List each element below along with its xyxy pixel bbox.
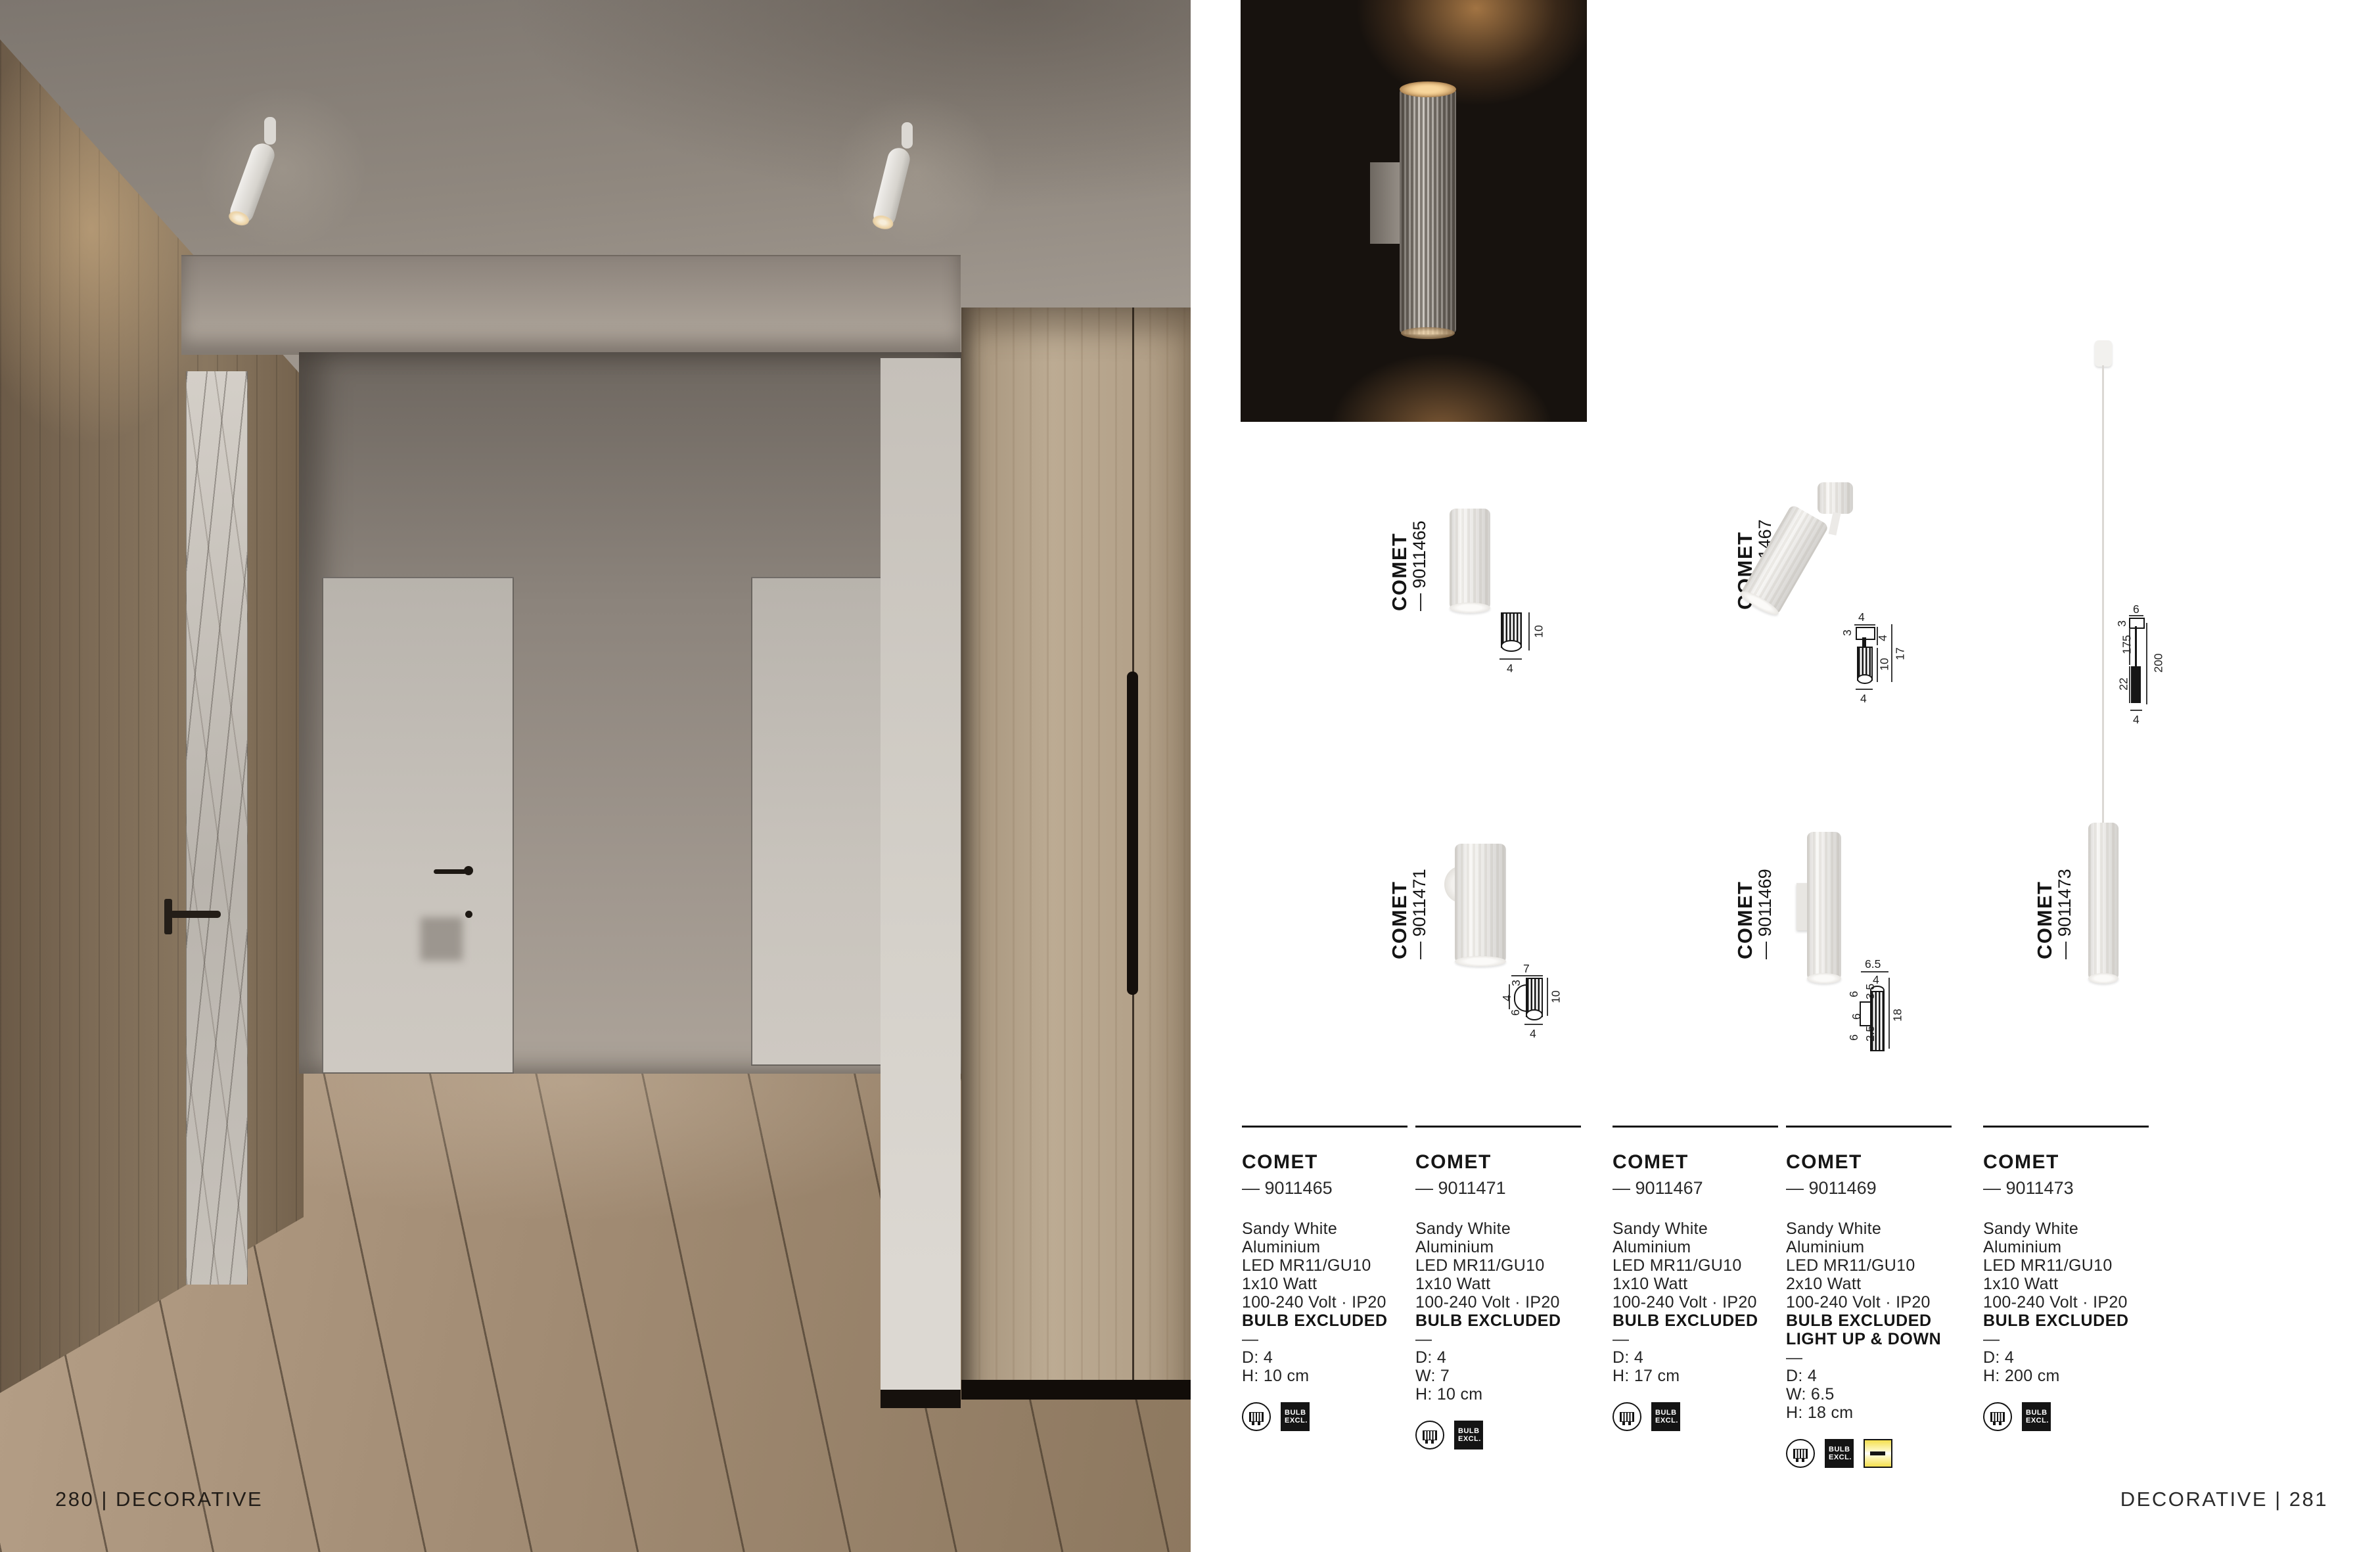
ribbed-cylinder-lamp [1400,87,1456,334]
column-rule [1415,1126,1581,1128]
tech-9011465-face [1501,640,1522,652]
gu10-bulb-icon [1613,1402,1641,1431]
dim-9011471-mount-h: 4 [1501,995,1513,1001]
spec-bold-line: LIGHT UP & DOWN [1786,1330,1952,1348]
drawing-label-9011473: COMET — 9011473 [2034,869,2074,959]
tech-9011473-canopy [2129,618,2145,629]
dim-line: H: 10 cm [1242,1367,1407,1385]
dim-9011471-diameter: 4 [1530,1028,1536,1039]
dim-9011473-diameter: 4 [2133,714,2140,725]
spec-line: Sandy White [1983,1220,2149,1238]
drawing-label-9011471: COMET — 9011471 [1389,869,1429,959]
render-9011467-stem [1829,512,1841,536]
spec-line: 100-240 Volt · IP20 [1613,1293,1778,1312]
page-number-right: DECORATIVE | 281 [2120,1488,2328,1511]
bulb-excluded-badge: BULBEXCL. [1281,1402,1310,1431]
white-door-left [322,577,514,1074]
dim-9011469-l5: 2.5 [1864,1026,1876,1041]
dim-9011469-l4: 6 [1848,1034,1860,1041]
dim-9011469-depth: 6.5 [1865,958,1881,970]
dim-line: D: 4 [1242,1348,1407,1367]
render-9011467-canopy [1818,482,1853,514]
dim-line: D: 4 [1613,1348,1778,1367]
dim-9011471-offset: 6 [1509,1009,1521,1016]
interior-photo: 280 | DECORATIVE [0,0,1191,1552]
dim-9011467-total-h: 17 [1894,647,1906,660]
dim-9011473-canopy-h: 3 [2116,620,2128,627]
dim-9011473-canopy-w: 6 [2133,603,2140,615]
white-door-right [751,577,882,1066]
pillar-plinth [881,1390,961,1408]
gu10-bulb-icon [1415,1421,1444,1449]
render-9011473-cord [2102,365,2104,824]
product-spec-9011473: COMET — 9011473 Sandy White Aluminium LE… [1983,1126,2149,1431]
spec-line: LED MR11/GU10 [1613,1256,1778,1275]
bulb-excluded-badge: BULBEXCL. [1825,1439,1854,1468]
spec-line: 100-240 Volt · IP20 [1786,1293,1952,1312]
drawing-label-9011465: COMET — 9011465 [1389,520,1429,611]
product-name: COMET [1415,1151,1581,1174]
spec-bold-line: BULB EXCLUDED [1613,1312,1778,1330]
product-spec-9011469: COMET — 9011469 Sandy White Aluminium LE… [1786,1126,1952,1468]
dim-9011471-height: 10 [1550,990,1562,1003]
gu10-bulb-icon [1786,1439,1815,1468]
bulb-excluded-badge: BULBEXCL. [1651,1402,1680,1431]
dim-line: D: 4 [1415,1348,1581,1367]
spec-line: Aluminium [1786,1238,1952,1256]
product-code: — 9011467 [1613,1178,1778,1198]
left-door-handle [170,911,221,918]
spotlight-glow-left [197,85,368,250]
light-up-down-icon [1864,1439,1892,1468]
spec-line: 1x10 Watt [1983,1275,2149,1293]
product-spec-9011467: COMET — 9011467 Sandy White Aluminium LE… [1613,1126,1778,1431]
catalog-page: 280 | DECORATIVE COMET — 9011465 10 4 CO… [0,0,2380,1552]
wall-bracket [1370,162,1400,244]
spec-line: 1x10 Watt [1242,1275,1407,1293]
product-name: COMET [1983,1151,2149,1174]
dim-line: D: 4 [1786,1367,1952,1385]
column-rule [1786,1126,1952,1128]
spotlight-glow-right [835,92,999,250]
white-pillar [881,358,961,1408]
dim-9011473-wire-l: 175 [2121,635,2133,654]
spec-bold-line: BULB EXCLUDED [1415,1312,1581,1330]
render-9011465 [1450,509,1490,610]
spec-line: Aluminium [1983,1238,2149,1256]
dim-9011467-canopy-h: 3 [1841,629,1853,636]
dim-9011469-l3: 6 [1850,1013,1862,1020]
wardrobe-handle [1127,672,1138,995]
bulb-excluded-badge: BULBEXCL. [1454,1421,1483,1449]
marble-strip [186,371,248,1285]
drawing-label-9011469: COMET — 9011469 [1735,869,1775,959]
dim-9011465-height: 10 [1533,625,1545,637]
page-number-left: 280 | DECORATIVE [55,1488,263,1511]
spec-bold-line: BULB EXCLUDED [1786,1312,1952,1330]
render-9011469-body [1807,832,1841,980]
tech-9011469-body [1870,991,1885,1051]
spec-line: 2x10 Watt [1786,1275,1952,1293]
render-9011471-body [1455,844,1506,963]
render-9011473-body [2088,823,2118,980]
dim-9011469-l1: 6 [1848,991,1860,997]
gu10-bulb-icon [1242,1402,1271,1431]
spec-line: Sandy White [1786,1220,1952,1238]
product-spec-9011471: COMET — 9011471 Sandy White Aluminium LE… [1415,1126,1581,1449]
wood-wardrobe [961,308,1191,1400]
column-rule [1613,1126,1778,1128]
spec-line: 100-240 Volt · IP20 [1415,1293,1581,1312]
lamp-top-glow [1400,81,1456,97]
spec-line: 1x10 Watt [1613,1275,1778,1293]
render-9011473-canopy [2095,340,2112,367]
dim-9011469-l2: 3.5 [1864,984,1876,999]
product-code: — 9011473 [1983,1178,2149,1198]
spec-line: Sandy White [1242,1220,1407,1238]
dim-line: W: 6.5 [1786,1385,1952,1404]
dim-9011473-body-h: 22 [2118,677,2130,690]
spec-divider-dash: — [1242,1330,1407,1348]
dim-9011465-diameter: 4 [1507,662,1513,674]
spec-line: Sandy White [1415,1220,1581,1238]
spec-line: Aluminium [1415,1238,1581,1256]
spotlight-left-mount [264,117,276,145]
product-code: — 9011465 [1242,1178,1407,1198]
dim-9011473-total-h: 200 [2153,653,2164,672]
spec-line: LED MR11/GU10 [1786,1256,1952,1275]
dim-9011467-diameter: 4 [1860,693,1867,704]
product-name: COMET [1242,1151,1407,1174]
product-code: — 9011471 [1415,1178,1581,1198]
spec-line: Aluminium [1242,1238,1407,1256]
spec-divider-dash: — [1983,1330,2149,1348]
spotlight-right-mount [902,122,913,148]
dim-line: W: 7 [1415,1367,1581,1385]
wardrobe-plinth [961,1380,1191,1400]
dim-9011467-body-h: 10 [1879,658,1890,670]
product-code: — 9011469 [1786,1178,1952,1198]
tech-9011473-body [2131,666,2141,703]
spec-line: Aluminium [1613,1238,1778,1256]
tech-9011471-mount [1514,984,1527,1012]
spec-line: LED MR11/GU10 [1242,1256,1407,1275]
bulb-excluded-badge: BULBEXCL. [2022,1402,2051,1431]
dim-9011467-gap: 4 [1877,635,1888,641]
door-lock-lower [465,911,472,918]
spec-line: Sandy White [1613,1220,1778,1238]
dim-line: H: 18 cm [1786,1404,1952,1422]
dim-line: H: 17 cm [1613,1367,1778,1385]
product-spec-9011465: COMET — 9011465 Sandy White Aluminium LE… [1242,1126,1407,1431]
dim-line: H: 200 cm [1983,1367,2149,1385]
tech-9011473-wire [2135,626,2137,666]
gu10-bulb-icon [1983,1402,2012,1431]
door-lever [434,869,467,874]
spec-bold-line: BULB EXCLUDED [1983,1312,2149,1330]
spec-divider-dash: — [1786,1348,1952,1367]
spec-line: 100-240 Volt · IP20 [1983,1293,2149,1312]
spec-line: LED MR11/GU10 [1415,1256,1581,1275]
dim-9011469-height: 18 [1892,1009,1904,1021]
product-name: COMET [1613,1151,1778,1174]
door-handle-shadow [421,917,463,961]
column-rule [1983,1126,2149,1128]
spec-line: LED MR11/GU10 [1983,1256,2149,1275]
spec-line: 100-240 Volt · IP20 [1242,1293,1407,1312]
spec-bold-line: BULB EXCLUDED [1242,1312,1407,1330]
ceiling-bulkhead [181,255,961,355]
column-rule [1242,1126,1407,1128]
dim-line: D: 4 [1983,1348,2149,1367]
dim-line: H: 10 cm [1415,1385,1581,1404]
dim-9011467-canopy-w: 4 [1858,611,1865,623]
spec-divider-dash: — [1415,1330,1581,1348]
spec-line: 1x10 Watt [1415,1275,1581,1293]
dim-9011471-depth: 7 [1523,963,1530,974]
product-name: COMET [1786,1151,1952,1174]
product-photo-wall-light [1241,0,1587,422]
lamp-bottom-glow [1401,327,1455,339]
spec-divider-dash: — [1613,1330,1778,1348]
